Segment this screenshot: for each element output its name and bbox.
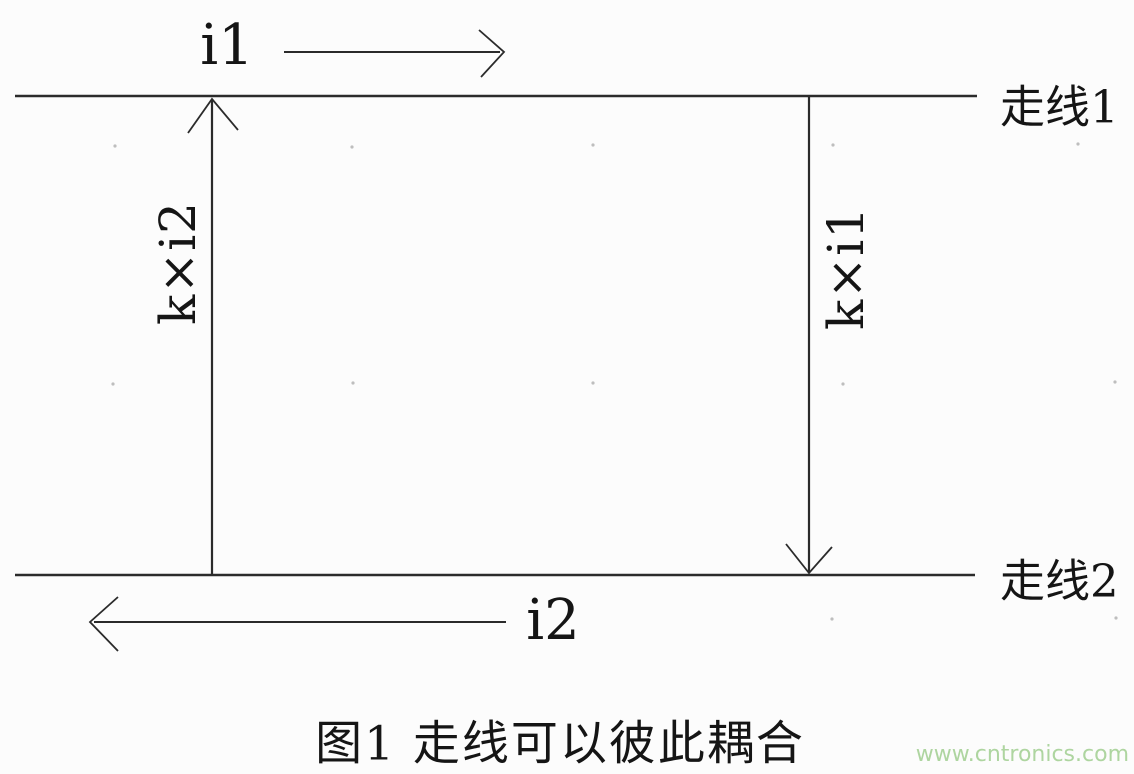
grid-dot	[830, 617, 833, 620]
grid-dot	[1114, 616, 1117, 619]
current2-label: i2	[526, 593, 580, 649]
grid-dot	[1076, 142, 1079, 145]
diagram-svg	[0, 0, 1134, 774]
trace2-label: 走线2	[1000, 559, 1119, 604]
grid-dot	[111, 382, 114, 385]
grid-dot	[831, 143, 834, 146]
grid-dot	[591, 381, 594, 384]
watermark: www.cntronics.com	[916, 742, 1129, 767]
coupling-left-label: k×i2	[153, 201, 203, 325]
grid-dot	[351, 381, 354, 384]
grid-dot	[841, 382, 844, 385]
grid-dot	[591, 143, 594, 146]
current2-arrowhead-left-icon	[90, 597, 118, 651]
grid-dot	[1113, 380, 1116, 383]
grid-dots	[111, 142, 1117, 620]
grid-dot	[350, 145, 353, 148]
trace1-label: 走线1	[1000, 85, 1119, 130]
current1-label: i1	[200, 18, 254, 74]
coupling-right-label: k×i1	[821, 206, 871, 330]
current1-arrowhead-right-icon	[479, 30, 504, 77]
figure-canvas: i1 走线1 k×i2 k×i1 走线2 i2 图1 走线可以彼此耦合 www.…	[0, 0, 1134, 774]
figure-caption: 图1 走线可以彼此耦合	[315, 721, 805, 768]
grid-dot	[113, 144, 116, 147]
